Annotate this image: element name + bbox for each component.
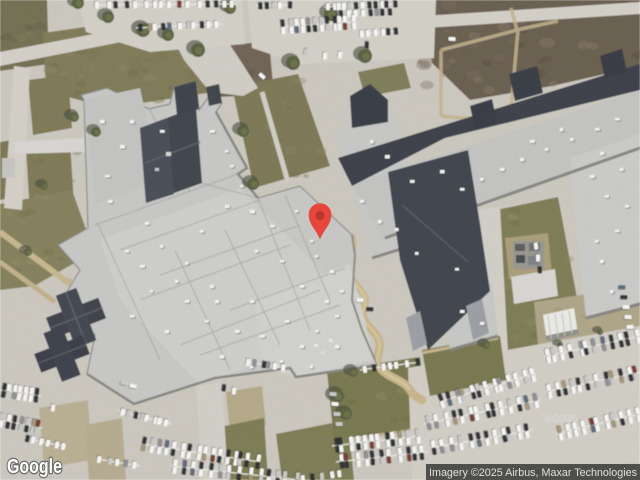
svg-text:Google: Google bbox=[7, 455, 62, 478]
svg-text:Imagery ©2025 Airbus, Maxar Te: Imagery ©2025 Airbus, Maxar Technologies bbox=[429, 467, 637, 479]
